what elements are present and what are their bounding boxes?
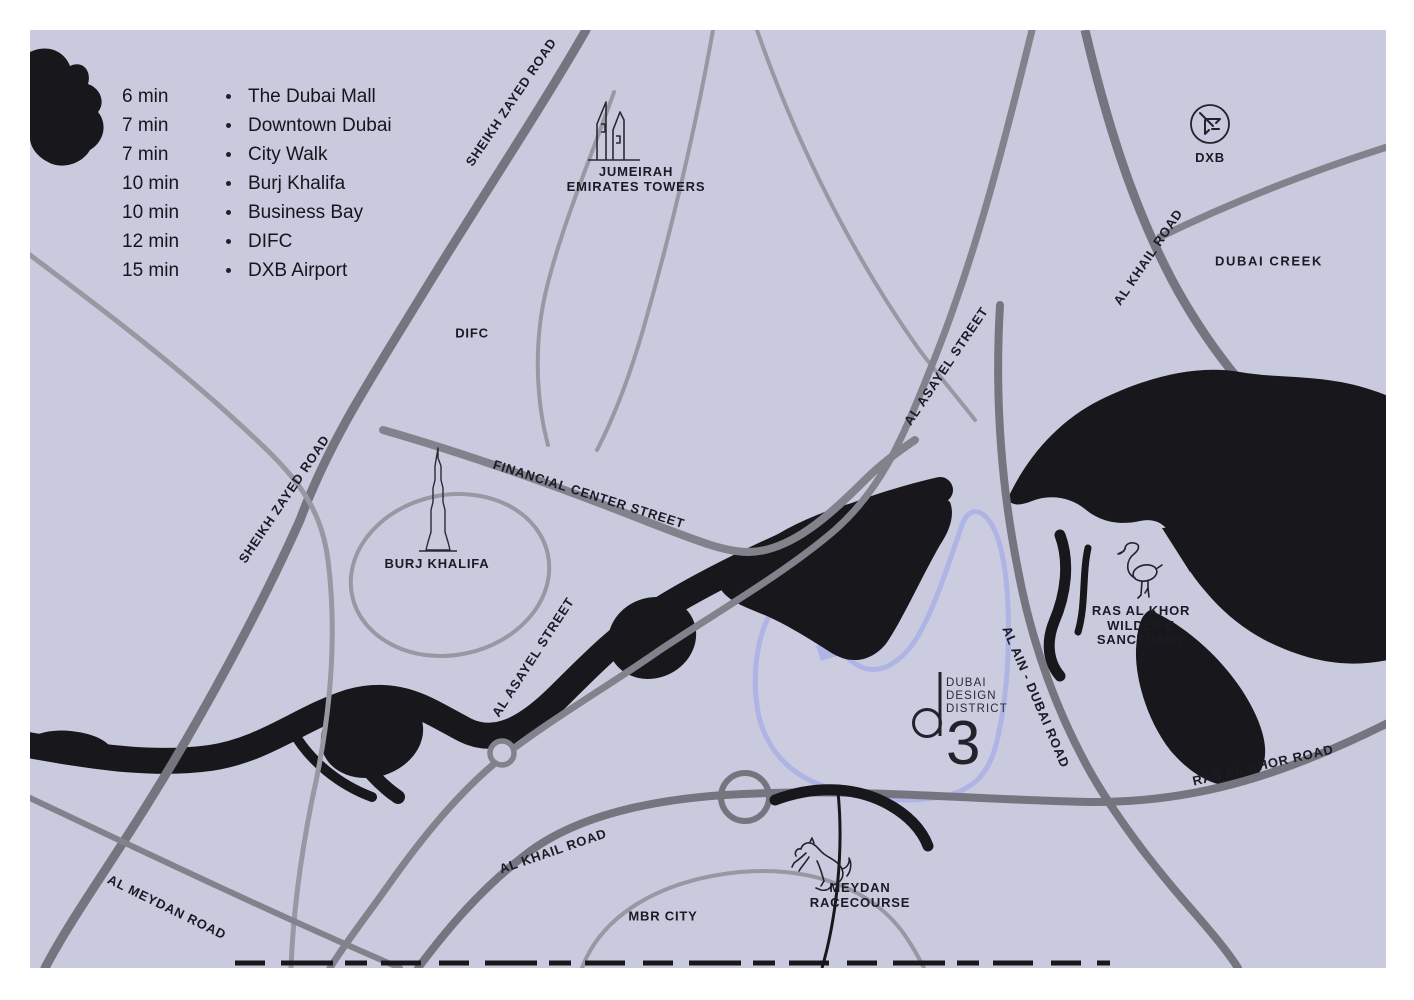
- legend-place: Business Bay: [248, 202, 363, 224]
- ras-al-khor-label: RAS AL KHORWILDLIFESANCTUARY: [1092, 604, 1190, 648]
- bullet-icon: [208, 181, 248, 186]
- emirates-towers-label: JUMEIRAHEMIRATES TOWERS: [567, 165, 706, 194]
- bullet-icon: [208, 268, 248, 273]
- legend-place: City Walk: [248, 144, 328, 166]
- legend-time: 7 min: [122, 115, 208, 137]
- legend-time: 15 min: [122, 260, 208, 282]
- bullet-icon: [208, 152, 248, 157]
- d3-logo-text-line1: DUBAI: [946, 677, 987, 689]
- d3-logo-text-line2: DESIGN: [946, 690, 997, 702]
- legend-place: Burj Khalifa: [248, 173, 345, 195]
- legend-row: 15 minDXB Airport: [122, 256, 392, 285]
- bullet-icon: [208, 94, 248, 99]
- legend-time: 6 min: [122, 86, 208, 108]
- legend-row: 10 minBurj Khalifa: [122, 169, 392, 198]
- d3-logo: DUBAI DESIGN DISTRICT 3: [896, 666, 1012, 772]
- legend-place: DXB Airport: [248, 260, 347, 282]
- legend-time: 7 min: [122, 144, 208, 166]
- area-label-difc: DIFC: [455, 326, 489, 341]
- emirates-towers-icon: [586, 94, 642, 164]
- bullet-icon: [208, 210, 248, 215]
- d3-logo-numeral: 3: [946, 709, 980, 772]
- burj-khalifa-icon: [412, 444, 464, 558]
- burj-khalifa-label: BURJ KHALIFA: [385, 557, 490, 572]
- dubai-design-district-location-map: { "colors": { "frame": "#ffffff", "map_b…: [0, 0, 1414, 1000]
- legend-row: 7 minDowntown Dubai: [122, 111, 392, 140]
- road-roundabout: [490, 741, 514, 765]
- dxb-airport-icon: [1186, 100, 1234, 148]
- legend-place: DIFC: [248, 231, 292, 253]
- legend-time: 10 min: [122, 202, 208, 224]
- area-label-dubai-creek: DUBAI CREEK: [1215, 254, 1323, 269]
- legend-row: 12 minDIFC: [122, 227, 392, 256]
- legend-place: The Dubai Mall: [248, 86, 376, 108]
- d3-logo-d: [914, 672, 941, 737]
- legend-time: 10 min: [122, 173, 208, 195]
- bullet-icon: [208, 239, 248, 244]
- flamingo-icon: [1112, 538, 1168, 602]
- meydan-racecourse-label: MEYDANRACECOURSE: [810, 881, 910, 910]
- travel-times-legend: 6 minThe Dubai Mall 7 minDowntown Dubai …: [122, 82, 392, 285]
- legend-place: Downtown Dubai: [248, 115, 392, 137]
- legend-row: 6 minThe Dubai Mall: [122, 82, 392, 111]
- legend-row: 7 minCity Walk: [122, 140, 392, 169]
- dxb-airport-label: DXB: [1195, 151, 1225, 166]
- area-label-mbr-city: MBR CITY: [628, 909, 697, 924]
- legend-row: 10 minBusiness Bay: [122, 198, 392, 227]
- bullet-icon: [208, 123, 248, 128]
- legend-time: 12 min: [122, 231, 208, 253]
